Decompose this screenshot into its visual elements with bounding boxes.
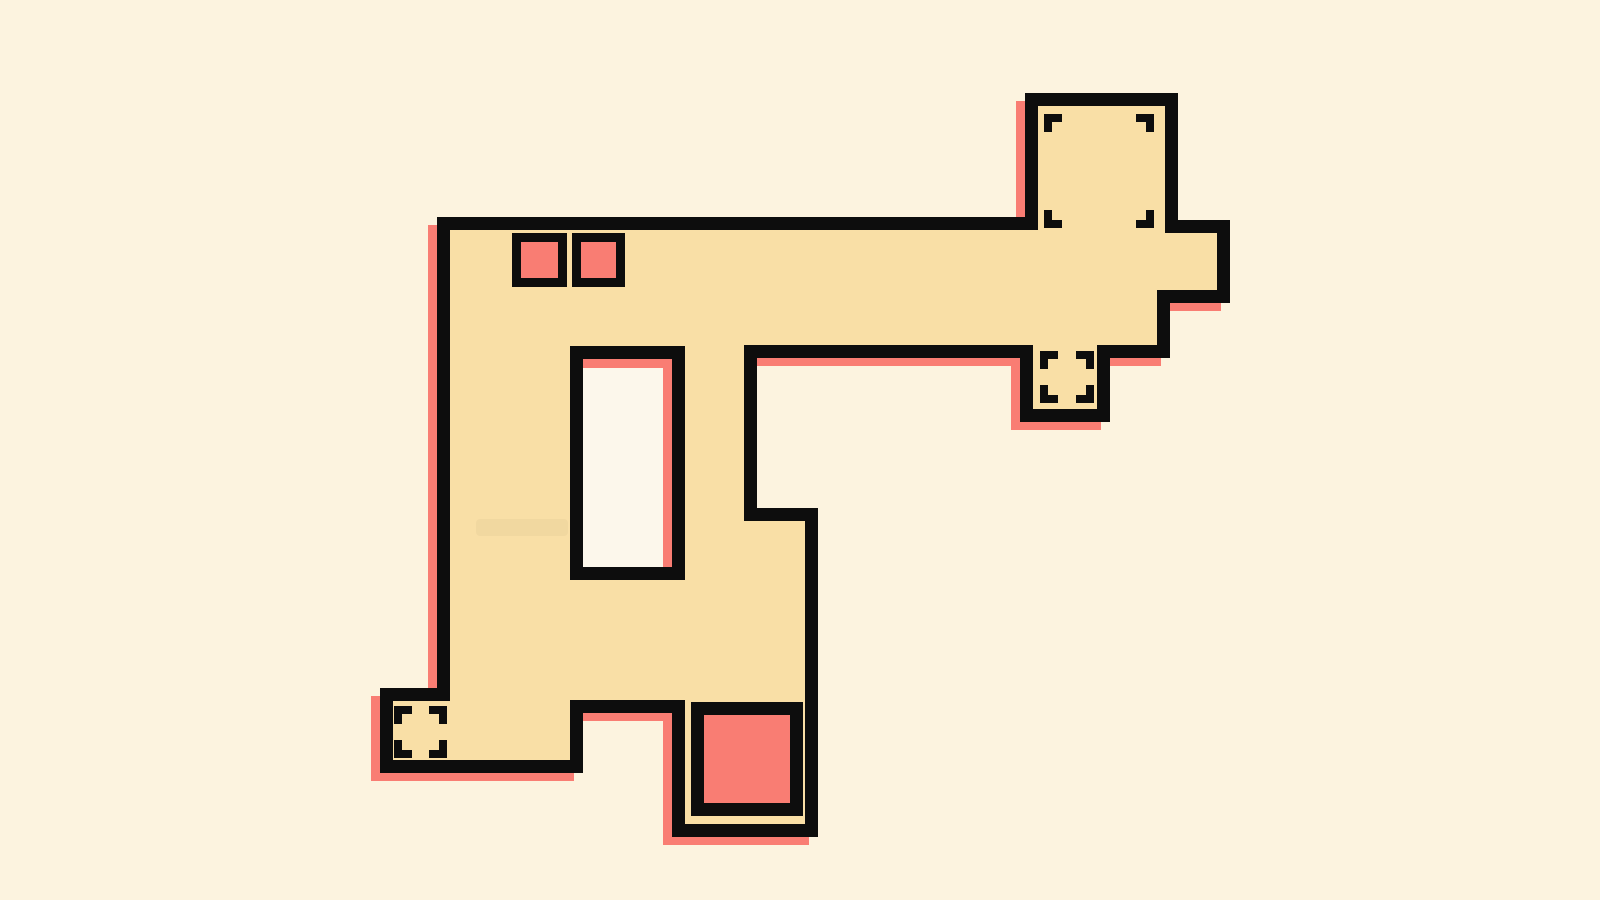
floor-plan-board bbox=[0, 0, 1600, 900]
target-room-top-right-room[interactable] bbox=[1044, 114, 1154, 228]
red-marker-square-2[interactable] bbox=[577, 238, 621, 283]
window-hole bbox=[583, 359, 672, 567]
game-canvas bbox=[0, 0, 1600, 900]
hole-inner-shadow-strip-2 bbox=[663, 359, 672, 567]
large-red-square[interactable] bbox=[698, 709, 797, 810]
hole-inner-shadow-strip-1 bbox=[583, 359, 672, 368]
red-marker-square-1[interactable] bbox=[517, 238, 563, 283]
floor-watermark-smudge bbox=[476, 519, 568, 536]
